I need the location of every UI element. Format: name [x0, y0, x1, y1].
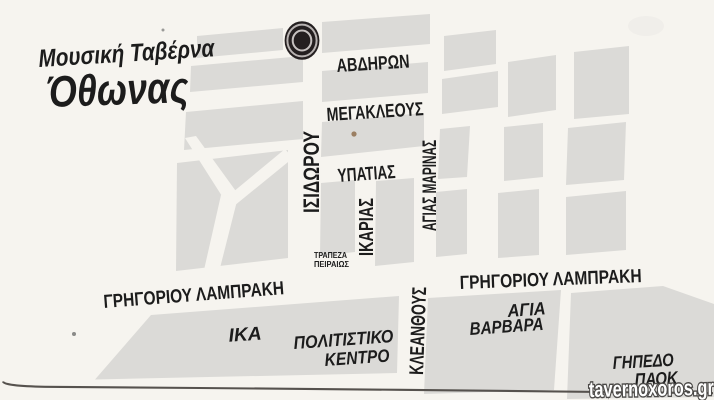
svg-text:ΠΕΙΡΑΙΩΣ: ΠΕΙΡΑΙΩΣ: [314, 260, 349, 269]
svg-text:ΙΣΙΔΩΡΟΥ: ΙΣΙΔΩΡΟΥ: [299, 131, 324, 213]
svg-text:ΤΡΑΠΕΖΑ: ΤΡΑΠΕΖΑ: [314, 251, 347, 260]
svg-text:ΥΠΑΤΙΑΣ: ΥΠΑΤΙΑΣ: [337, 162, 396, 187]
svg-text:ΙΚΑΡΙΑΣ: ΙΚΑΡΙΑΣ: [356, 198, 378, 256]
svg-text:tavernoxoros.gr: tavernoxoros.gr: [589, 375, 714, 400]
svg-text:ΑΒΔΗΡΩΝ: ΑΒΔΗΡΩΝ: [336, 52, 410, 77]
svg-text:ΙΚΑ: ΙΚΑ: [228, 324, 262, 347]
svg-text:Όθωνας: Όθωνας: [46, 63, 190, 117]
svg-text:ΚΛΕΑΝΘΟΥΣ: ΚΛΕΑΝΘΟΥΣ: [406, 286, 431, 375]
svg-text:ΑΓΙΑΣ ΜΑΡΙΝΑΣ: ΑΓΙΑΣ ΜΑΡΙΝΑΣ: [419, 140, 441, 231]
